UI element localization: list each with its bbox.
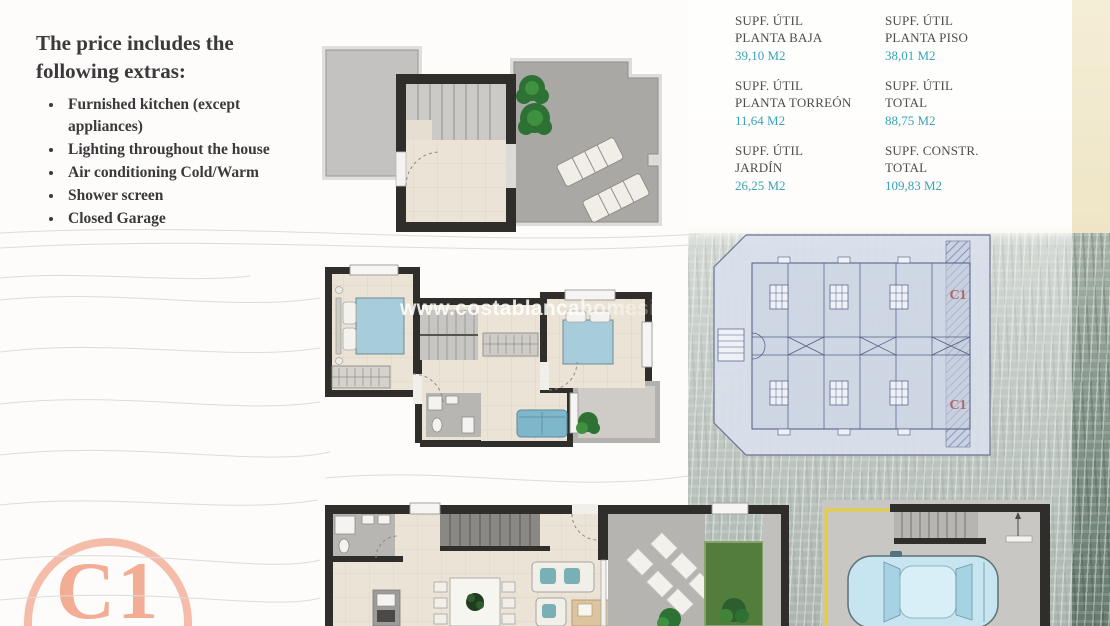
extras-item: Closed Garage bbox=[64, 208, 304, 230]
spec-label: SUPF. ÚTIL bbox=[885, 77, 1033, 94]
c1-logo-label: C1 bbox=[46, 544, 170, 626]
side-mirror bbox=[890, 551, 902, 557]
spec-label: SUPF. ÚTIL bbox=[735, 12, 885, 29]
spec-label: PLANTA PISO bbox=[885, 29, 1033, 46]
bathroom bbox=[333, 514, 403, 562]
extras-item: Shower screen bbox=[64, 185, 304, 207]
extras-heading: The price includes the following extras: bbox=[36, 30, 281, 85]
side-path bbox=[763, 514, 781, 626]
dining-table bbox=[434, 578, 515, 626]
sliding-glass-door bbox=[601, 560, 606, 626]
torreon-room bbox=[396, 74, 516, 232]
spec-value: 26,25 M2 bbox=[735, 177, 885, 194]
brochure-page: C1 bbox=[0, 0, 1110, 626]
wardrobe bbox=[332, 366, 390, 388]
website-watermark: www.costablancahomesinspain bbox=[400, 297, 696, 325]
surface-specs-panel: SUPF. ÚTIL PLANTA BAJA 39,10 M2 SUPF. ÚT… bbox=[735, 12, 1033, 207]
terrace bbox=[608, 514, 715, 626]
spec-value: 88,75 M2 bbox=[885, 112, 1033, 129]
unit-label-c1-bottom: C1 bbox=[949, 398, 966, 413]
sofa bbox=[517, 410, 567, 437]
staircase bbox=[406, 84, 506, 140]
kitchen-counter bbox=[373, 590, 400, 626]
spec-label: TOTAL bbox=[885, 94, 1033, 111]
armchair bbox=[536, 598, 566, 626]
spec-constr-total: SUPF. CONSTR. TOTAL 109,83 M2 bbox=[885, 142, 1033, 194]
door-opening bbox=[396, 152, 406, 186]
car bbox=[848, 551, 998, 626]
spec-value: 39,10 M2 bbox=[735, 47, 885, 64]
staircase bbox=[440, 514, 550, 551]
spec-label: PLANTA TORREÓN bbox=[735, 94, 885, 111]
spec-planta-baja: SUPF. ÚTIL PLANTA BAJA 39,10 M2 bbox=[735, 12, 885, 64]
first-floor-plan bbox=[320, 262, 665, 462]
ground-floor-plan bbox=[322, 502, 797, 626]
spec-util-total: SUPF. ÚTIL TOTAL 88,75 M2 bbox=[885, 77, 1033, 129]
extras-item: Air conditioning Cold/Warm bbox=[64, 162, 304, 184]
spec-jardin: SUPF. ÚTIL JARDÍN 26,25 M2 bbox=[735, 142, 885, 194]
included-extras-panel: The price includes the following extras:… bbox=[36, 30, 326, 231]
sofa bbox=[532, 562, 594, 592]
spec-label: PLANTA BAJA bbox=[735, 29, 885, 46]
extras-list: Furnished kitchen (except appliances) Li… bbox=[36, 94, 304, 230]
spec-value: 109,83 M2 bbox=[885, 177, 1033, 194]
site-plan-blueprint: C1 C1 bbox=[712, 233, 992, 457]
spec-value: 11,64 M2 bbox=[735, 112, 885, 129]
garden bbox=[705, 542, 763, 626]
c1-logo: C1 bbox=[24, 538, 192, 626]
unit-label-c1-top: C1 bbox=[949, 288, 966, 303]
roof-terrace-floor-plan bbox=[318, 44, 663, 234]
terrace-door-opening bbox=[572, 504, 598, 514]
spec-label: SUPF. ÚTIL bbox=[735, 77, 885, 94]
garage-plan bbox=[822, 500, 1050, 626]
terrace-opening bbox=[506, 144, 516, 188]
balcony bbox=[573, 381, 660, 443]
spec-planta-piso: SUPF. ÚTIL PLANTA PISO 38,01 M2 bbox=[885, 12, 1033, 64]
spec-planta-torreon: SUPF. ÚTIL PLANTA TORREÓN 11,64 M2 bbox=[735, 77, 885, 129]
extras-item: Lighting throughout the house bbox=[64, 139, 304, 161]
spec-label: TOTAL bbox=[885, 159, 1033, 176]
extras-item: Furnished kitchen (except appliances) bbox=[64, 94, 304, 138]
closet bbox=[483, 333, 538, 356]
spec-value: 38,01 M2 bbox=[885, 47, 1033, 64]
spec-label: SUPF. CONSTR. bbox=[885, 142, 1033, 159]
spec-label: SUPF. ÚTIL bbox=[735, 142, 885, 159]
spec-label: JARDÍN bbox=[735, 159, 885, 176]
spec-label: SUPF. ÚTIL bbox=[885, 12, 1033, 29]
